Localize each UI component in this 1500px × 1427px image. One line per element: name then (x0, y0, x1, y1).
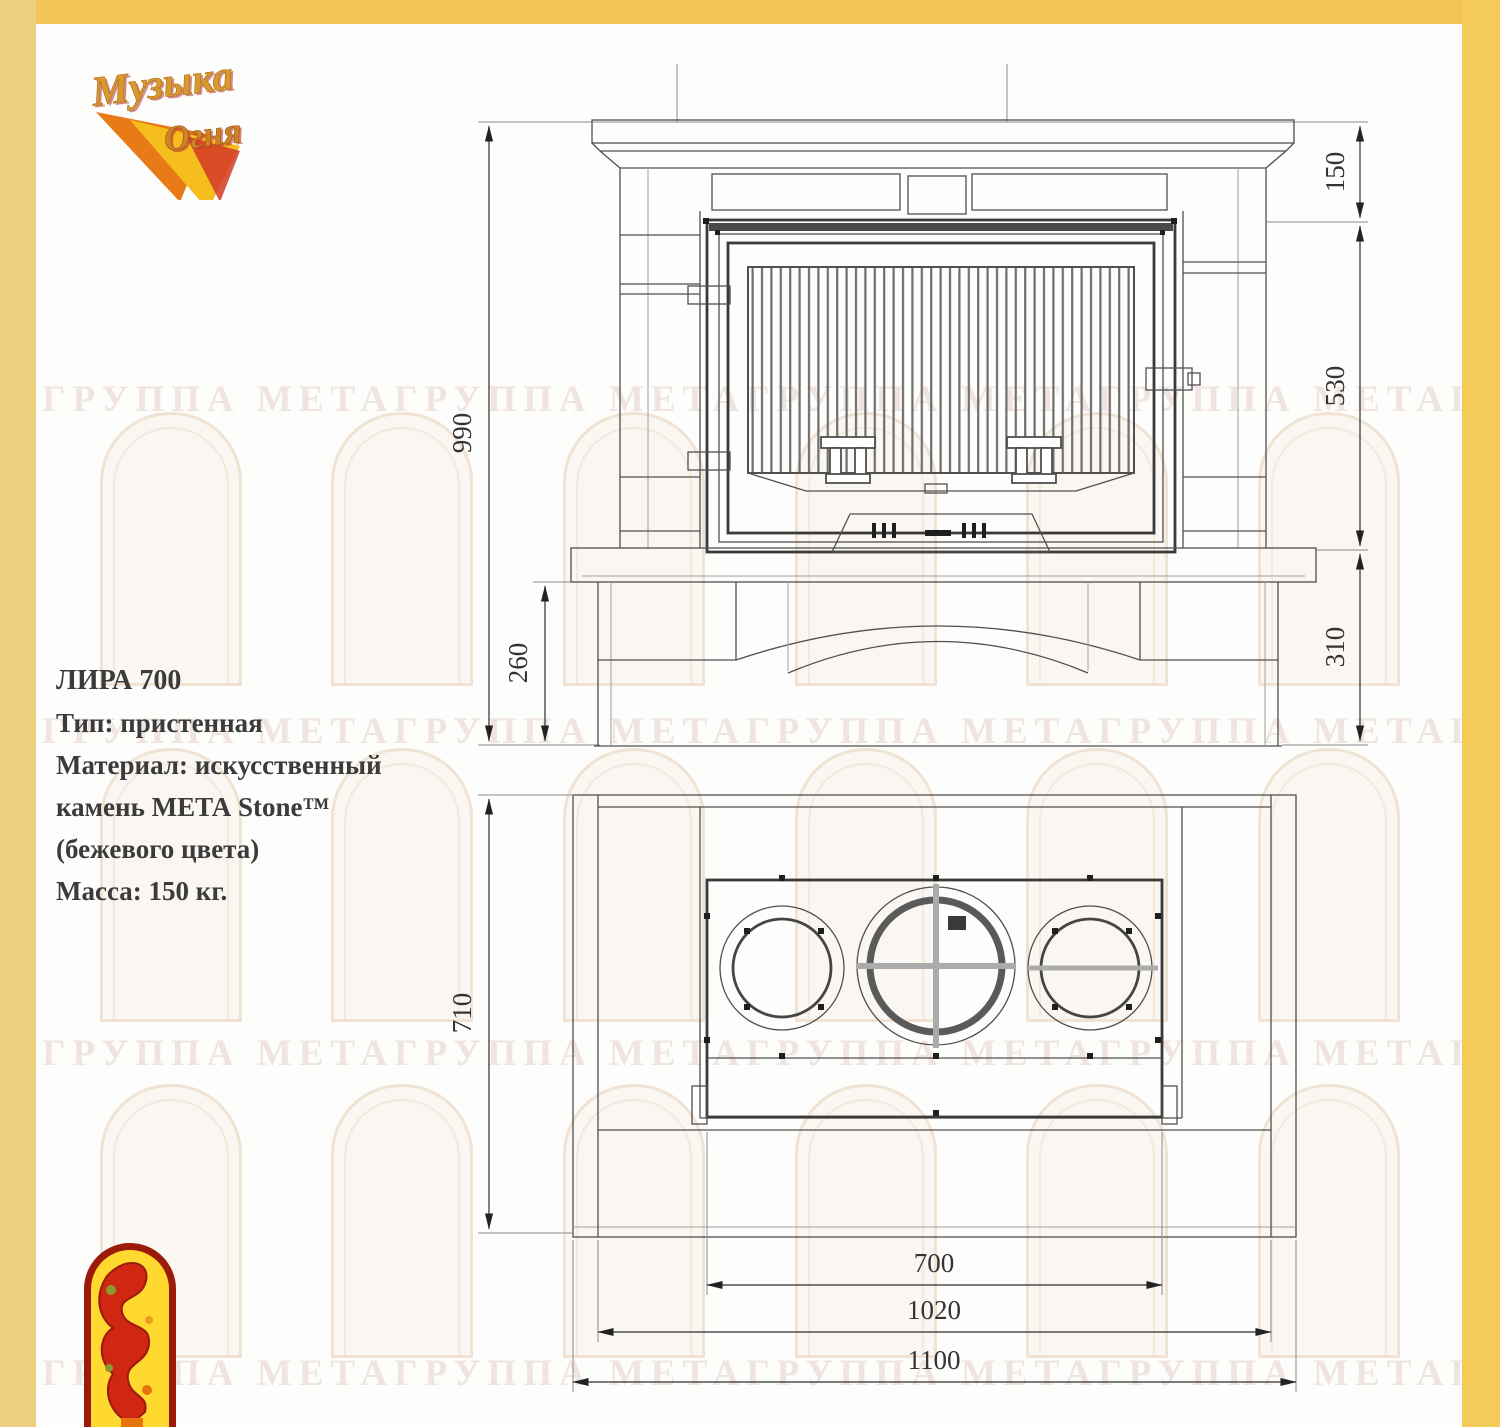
spec-line-material-2: камень МЕТА Stone™ (56, 786, 382, 828)
dimension-firebox-height: 530 (1320, 366, 1350, 407)
dimension-mantel-height: 150 (1320, 152, 1350, 193)
spec-sheet-page: ГРУППА МЕТАГРУППА МЕТАГРУППА МЕТАГРУППА … (0, 0, 1500, 1427)
dimension-plinth-height: 260 (503, 643, 533, 684)
spec-line-material-1: Материал: искусственный (56, 744, 382, 786)
dimension-overall-width: 1100 (908, 1345, 961, 1375)
dimension-height-total: 990 (447, 413, 477, 454)
spec-line-type: Тип: пристенная (56, 702, 382, 744)
dimension-firebox-width: 700 (914, 1248, 955, 1278)
dimension-base-height: 310 (1320, 627, 1350, 668)
product-specs: ЛИРА 700 Тип: пристенная Материал: искус… (56, 660, 382, 912)
brand-logo: Музыка Музыка Огня Огня (88, 50, 298, 200)
arch-emblem (84, 1243, 176, 1427)
flame-triangle-icon: Музыка Музыка Огня Огня (88, 50, 298, 200)
dimension-depth: 710 (447, 993, 477, 1034)
dimension-body-width: 1020 (907, 1295, 961, 1325)
brand-word-1: Музыка (88, 53, 236, 116)
flame-figure-icon (91, 1250, 169, 1427)
spec-line-mass: Масса: 150 кг. (56, 870, 382, 912)
product-title: ЛИРА 700 (56, 660, 382, 702)
spec-line-color: (бежевого цвета) (56, 828, 382, 870)
front-view-drawing: 990 260 150 530 310 (447, 64, 1368, 746)
top-view-drawing: 710 700 1020 1100 (447, 795, 1296, 1392)
